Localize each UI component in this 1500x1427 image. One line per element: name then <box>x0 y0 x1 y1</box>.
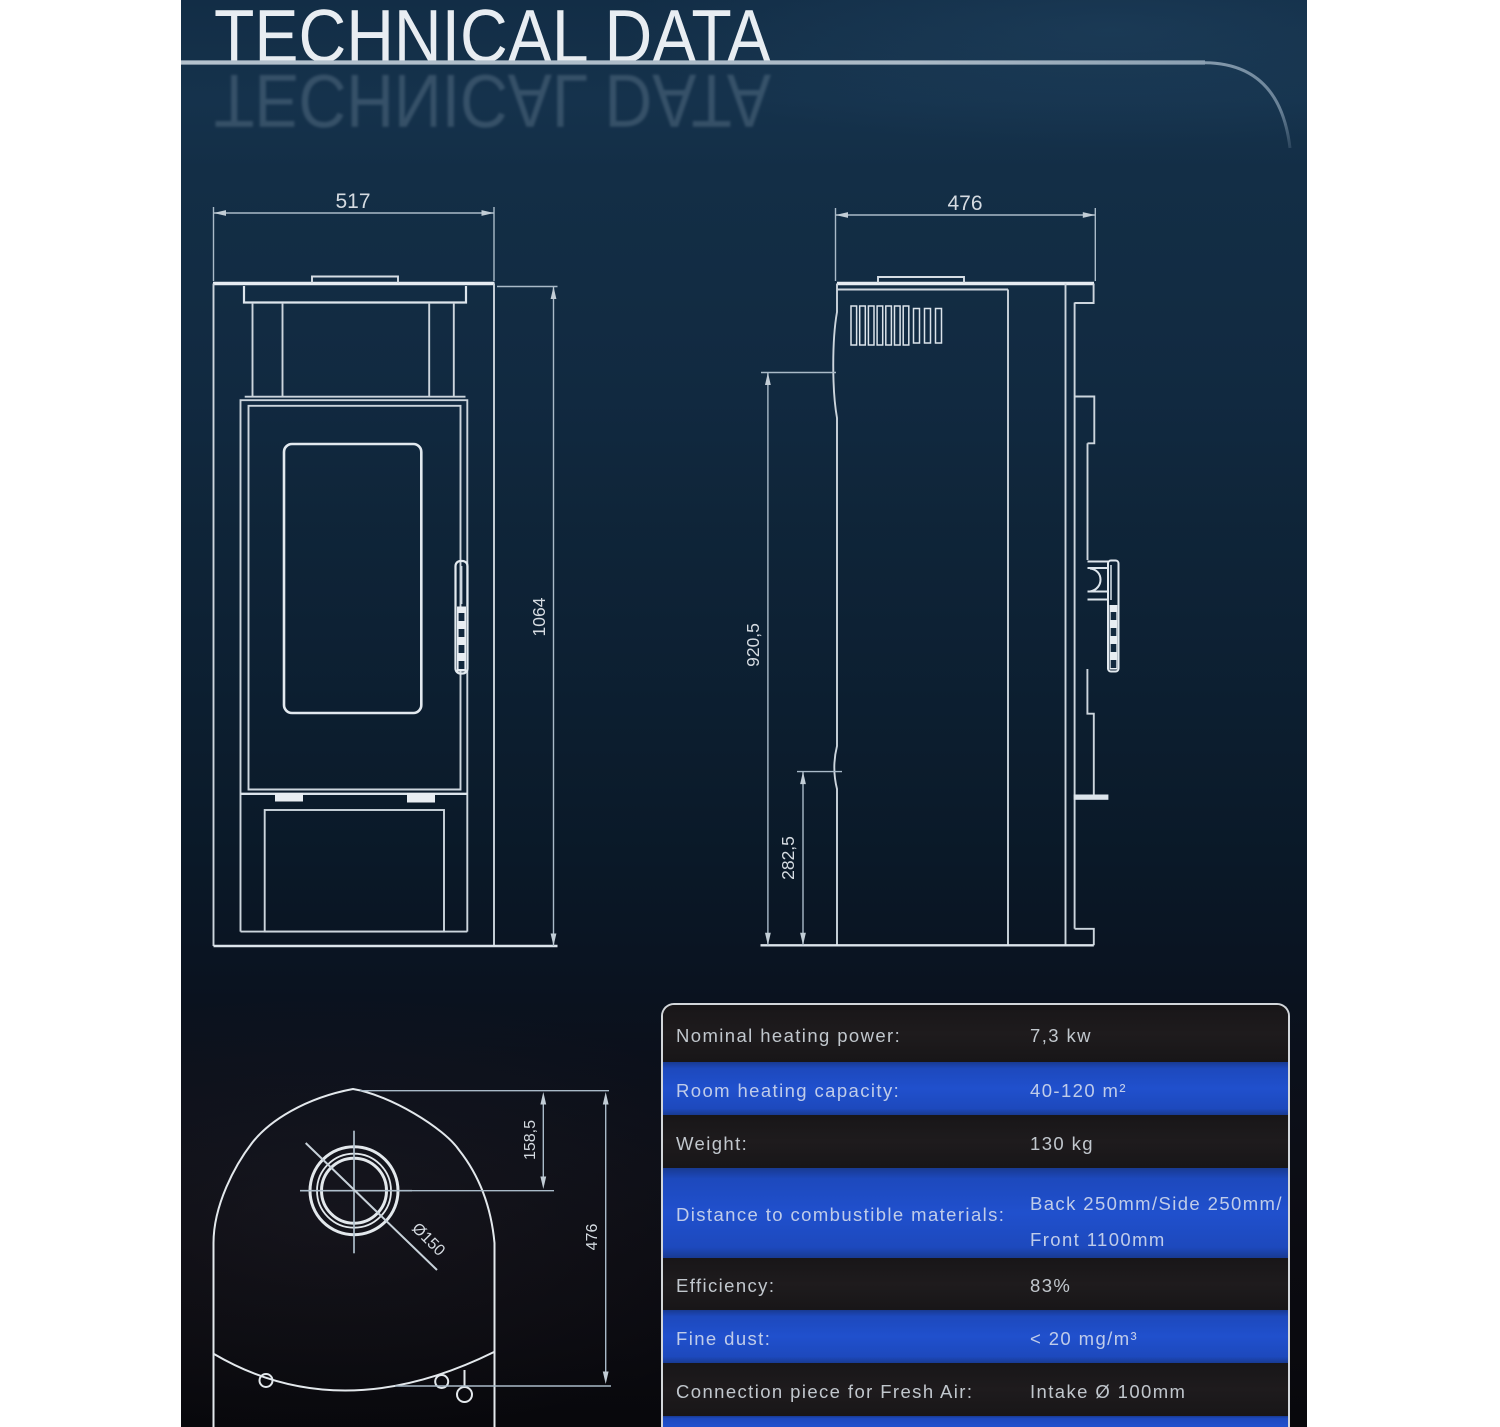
svg-text:158,5: 158,5 <box>522 1120 539 1160</box>
svg-text:476: 476 <box>947 192 982 215</box>
svg-text:517: 517 <box>335 190 370 213</box>
svg-text:282,5: 282,5 <box>778 836 798 880</box>
svg-text:1064: 1064 <box>529 597 549 636</box>
svg-text:TECHNICAL DATA: TECHNICAL DATA <box>214 59 771 143</box>
svg-text:920,5: 920,5 <box>743 623 763 667</box>
svg-text:476: 476 <box>584 1224 601 1251</box>
svg-text:Ø150: Ø150 <box>408 1220 448 1260</box>
